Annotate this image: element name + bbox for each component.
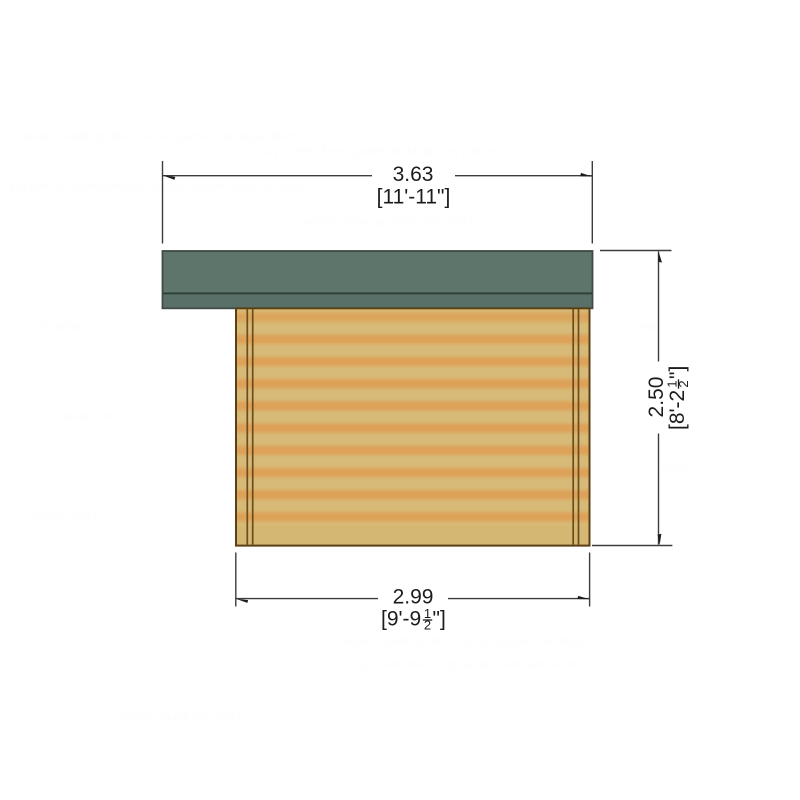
- svg-text:buy sheds direct log cabins su: buy sheds direct log cabins summerhouses: [350, 657, 580, 671]
- svg-text:[11'-11"]: [11'-11"]: [377, 186, 451, 209]
- svg-text:3.63: 3.63: [393, 163, 434, 186]
- svg-text:garden log: garden log: [60, 409, 117, 423]
- svg-text:"]: "]: [666, 366, 689, 379]
- svg-text:"]: "]: [433, 608, 446, 631]
- svg-text:garden buildings direct buy sh: garden buildings direct buy sheds: [300, 214, 479, 228]
- svg-text:buildings: buildings: [40, 319, 87, 333]
- svg-text:garden buildings direct: garden buildings direct: [120, 709, 241, 723]
- svg-text:[8'-2: [8'-2: [666, 390, 689, 430]
- svg-text:cabins direct: cabins direct: [30, 509, 98, 523]
- svg-text:garden buildings direct co uk: garden buildings direct co uk garden bui…: [340, 634, 584, 648]
- svg-text:[9'-9: [9'-9: [381, 608, 421, 631]
- svg-text:garden buildings direct co uk: garden buildings direct co uk garden bui…: [20, 129, 298, 143]
- svg-text:log: log: [640, 319, 656, 333]
- svg-text:buy sheds direct garden buildi: buy sheds direct garden buildings log ca…: [260, 144, 496, 158]
- svg-text:log cabins summerhouses sheds: log cabins summerhouses sheds garden bui…: [10, 179, 310, 193]
- svg-text:sheds: sheds: [660, 459, 692, 473]
